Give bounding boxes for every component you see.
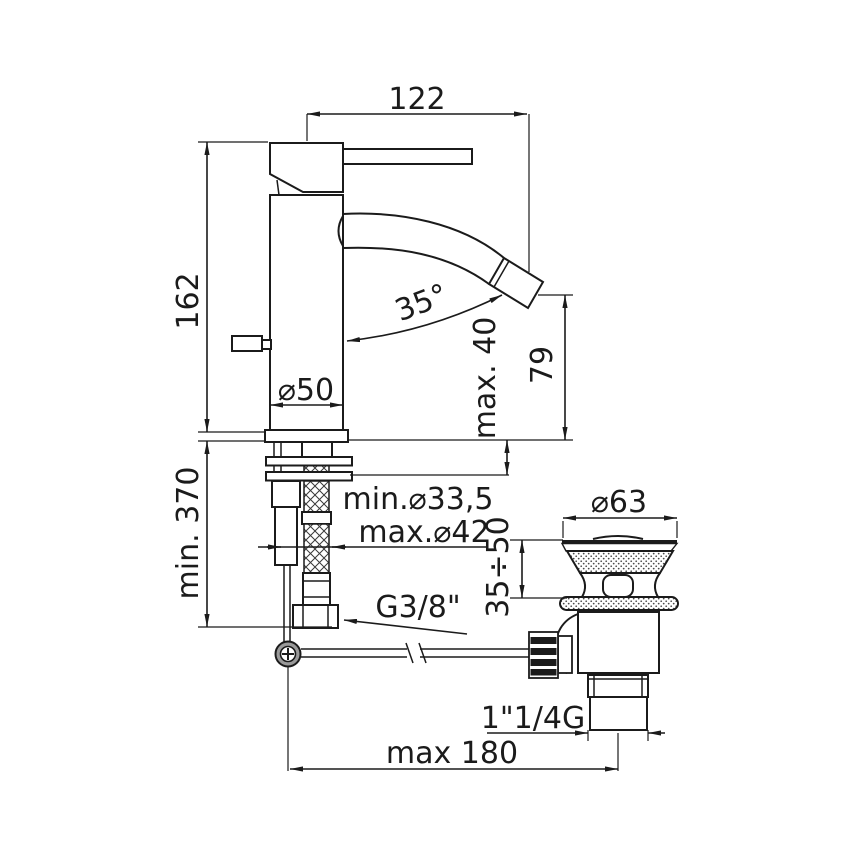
linkage-rod bbox=[301, 649, 529, 657]
hose-braid-2 bbox=[304, 524, 329, 573]
label-waste-clamping-range: 35÷50 bbox=[481, 516, 516, 617]
faucet-lever-handle bbox=[343, 149, 472, 164]
dimension-max-deck-thickness: max. 40 bbox=[350, 317, 509, 475]
technical-drawing-canvas: 122 162 min. 370 35° ⌀50 79 max. 40 min.… bbox=[0, 0, 868, 868]
spout-upper-curve bbox=[343, 214, 504, 258]
hose-ferrule bbox=[303, 573, 330, 605]
waste-neck-left bbox=[580, 573, 585, 597]
waste-tailpipe bbox=[590, 697, 647, 730]
label-min-hole-diameter: min.⌀33,5 bbox=[343, 482, 494, 517]
waste-cap-underside bbox=[562, 544, 677, 552]
label-spout-reach: 122 bbox=[388, 82, 445, 117]
label-min-hose-length: min. 370 bbox=[171, 467, 206, 600]
waste-upper-cone bbox=[567, 551, 673, 573]
g38-nut bbox=[293, 605, 338, 628]
label-max-deck-thickness: max. 40 bbox=[468, 317, 503, 440]
label-max-hole-diameter: max.⌀42 bbox=[358, 515, 489, 550]
rod-housing bbox=[272, 481, 300, 507]
faucet-dimension-drawing: 122 162 min. 370 35° ⌀50 79 max. 40 min.… bbox=[0, 0, 868, 868]
spout-lower-curve bbox=[343, 248, 489, 284]
rod-connector bbox=[558, 636, 572, 673]
hose-band bbox=[302, 512, 331, 524]
hose-braid-1 bbox=[304, 481, 329, 512]
dimension-height-to-deck: 162 bbox=[171, 142, 268, 432]
label-supply-thread: G3/8" bbox=[375, 590, 460, 625]
waste-lower-flange bbox=[560, 597, 678, 610]
head-detail-line bbox=[277, 180, 279, 195]
deck-flange bbox=[265, 430, 348, 442]
label-waste-thread: 1"1/4G bbox=[481, 701, 585, 736]
rod-tube bbox=[275, 507, 297, 565]
faucet-head bbox=[270, 143, 343, 192]
dimension-body-diameter: ⌀50 bbox=[270, 373, 343, 408]
label-waste-flange-diameter: ⌀63 bbox=[591, 485, 647, 520]
label-spout-angle: 35° bbox=[390, 277, 452, 329]
label-body-diameter: ⌀50 bbox=[278, 373, 334, 408]
waste-overflow-slot bbox=[603, 575, 633, 597]
washer-plate bbox=[266, 457, 352, 466]
label-height-to-deck: 162 bbox=[171, 272, 206, 329]
label-max-rod-reach: max 180 bbox=[386, 736, 518, 771]
pullrod-knob-stub bbox=[262, 340, 271, 349]
dimension-waste-flange-diameter: ⌀63 bbox=[563, 485, 677, 538]
pullrod-knob bbox=[232, 336, 262, 351]
waste-cap-dome bbox=[593, 536, 643, 539]
waste-valve-body bbox=[578, 612, 659, 673]
threaded-shank bbox=[302, 442, 332, 457]
label-spout-outlet-height: 79 bbox=[525, 346, 560, 384]
callout-supply-thread: G3/8" bbox=[344, 590, 467, 634]
waste-neck-right bbox=[655, 573, 660, 597]
rod-break-marks bbox=[406, 643, 426, 663]
dimension-waste-clamping-range: 35÷50 bbox=[481, 516, 567, 617]
lock-nut-plate bbox=[266, 472, 352, 481]
dimension-spout-outlet-height: 79 bbox=[348, 295, 573, 440]
